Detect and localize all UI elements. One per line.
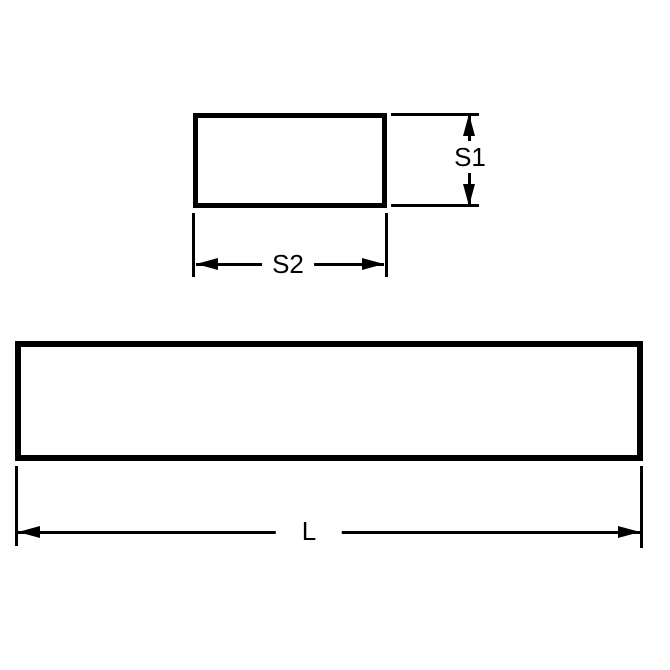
dimension-diagram: S1 S2 L xyxy=(0,0,670,670)
arrow-right-icon xyxy=(362,258,384,270)
l-right-extension-line xyxy=(640,466,643,548)
s2-left-extension-line xyxy=(192,213,195,277)
s2-right-extension-line xyxy=(385,213,388,277)
arrow-up-icon xyxy=(463,114,475,136)
side-view-rectangle xyxy=(15,341,643,461)
s1-label: S1 xyxy=(449,141,491,173)
arrow-down-icon xyxy=(463,184,475,206)
arrow-left-icon xyxy=(18,526,40,538)
arrow-right-icon xyxy=(618,526,640,538)
l-label: L xyxy=(276,516,342,546)
cross-section-rectangle xyxy=(193,113,387,208)
arrow-left-icon xyxy=(196,258,218,270)
s2-label: S2 xyxy=(262,249,314,279)
